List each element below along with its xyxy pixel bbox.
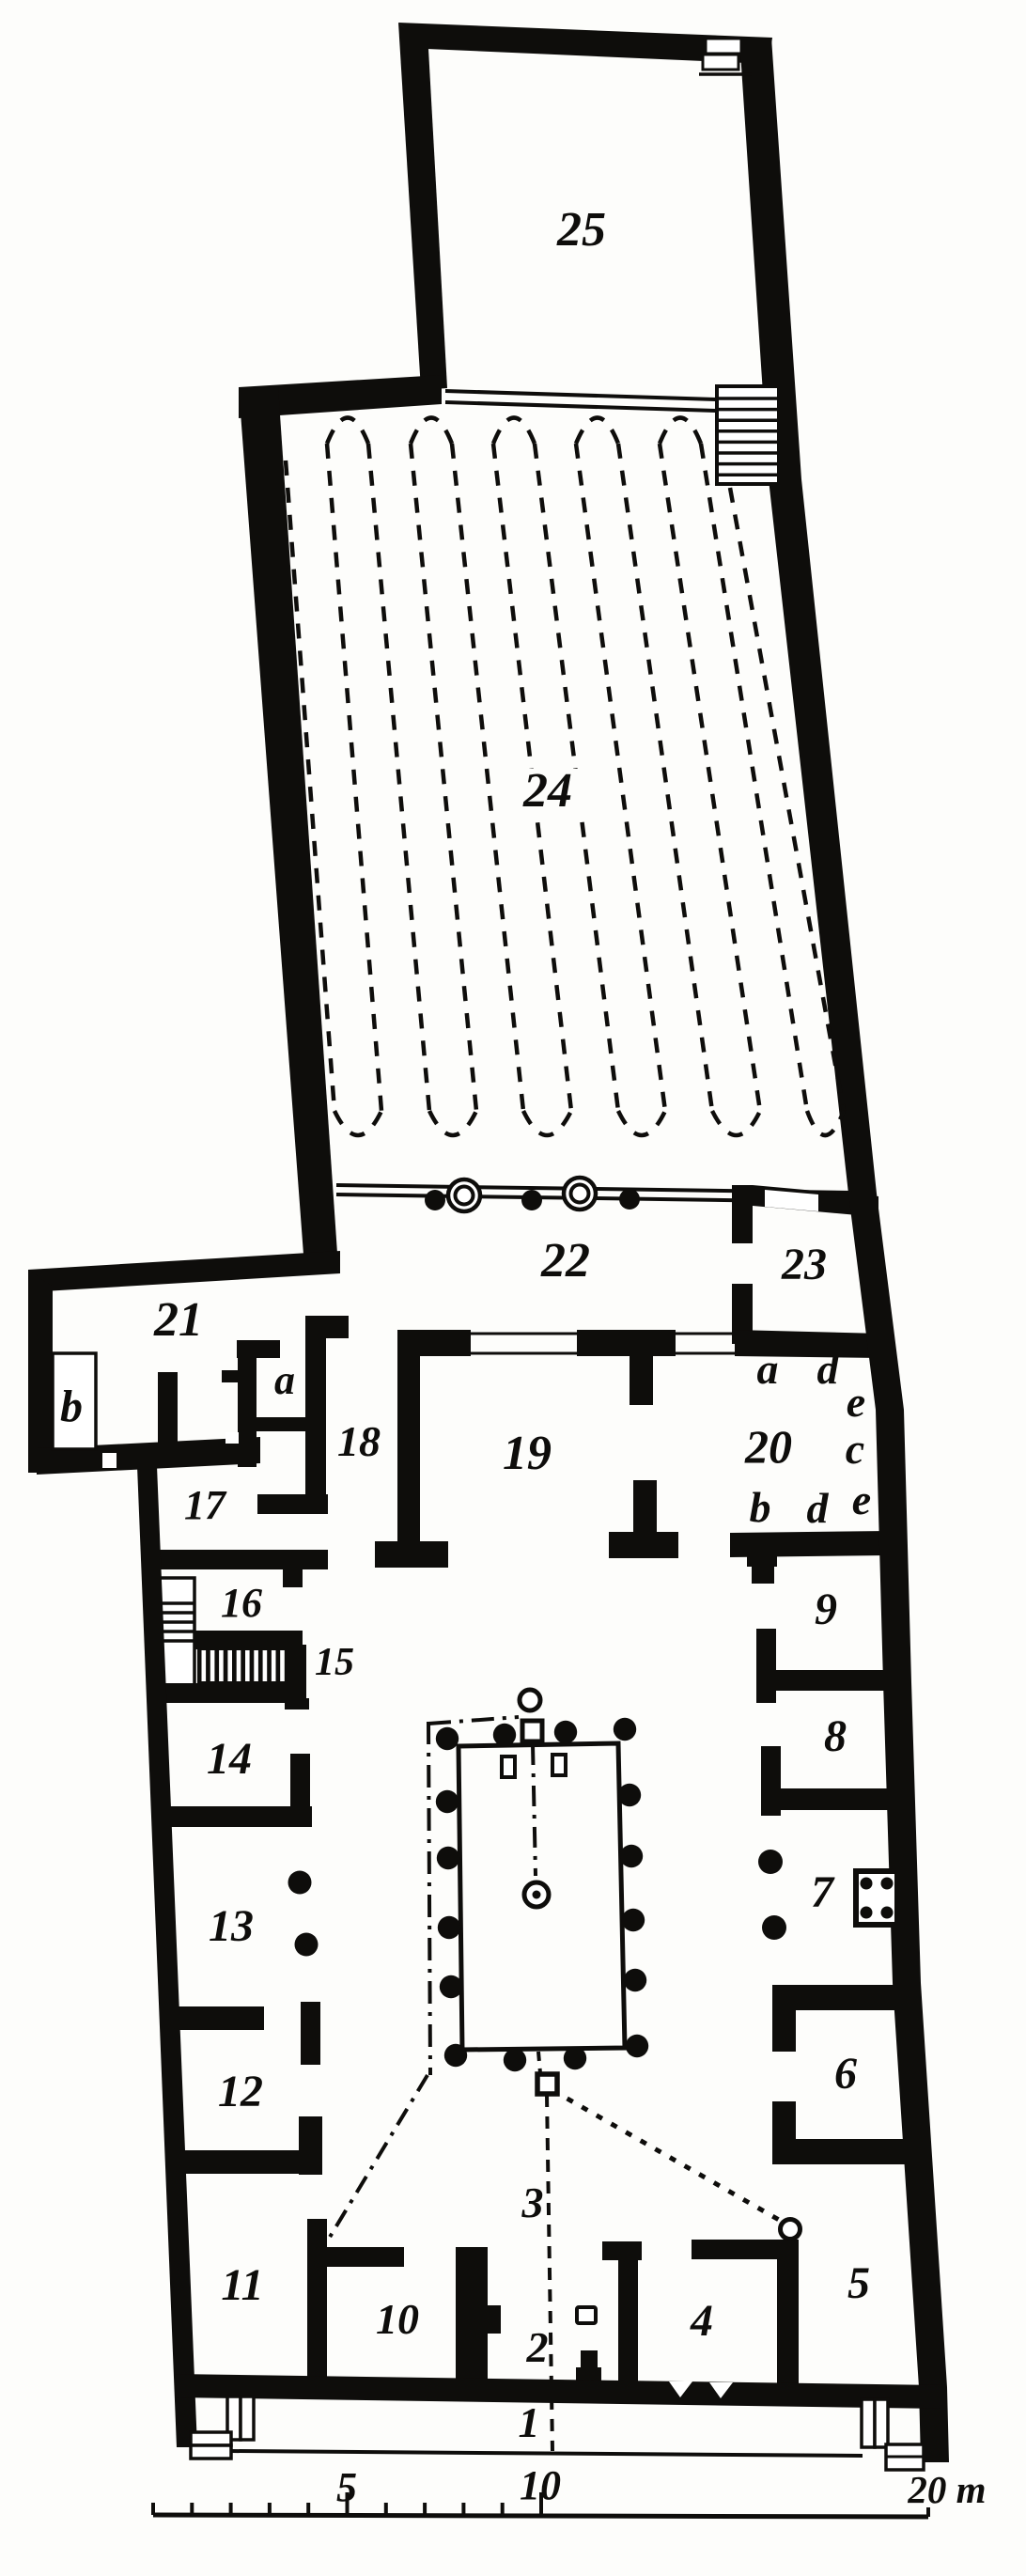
svg-text:12: 12 [218,2067,263,2116]
svg-text:d: d [817,1345,840,1393]
svg-text:e: e [847,1378,865,1426]
svg-text:14: 14 [207,1734,252,1784]
svg-text:e: e [852,1475,871,1523]
svg-text:b: b [60,1382,83,1431]
svg-text:4: 4 [690,2296,713,2346]
svg-text:9: 9 [815,1585,837,1634]
svg-text:13: 13 [209,1901,254,1951]
svg-text:5: 5 [847,2258,870,2308]
svg-text:b: b [750,1483,771,1531]
svg-text:15: 15 [315,1641,354,1684]
svg-text:19: 19 [503,1427,552,1480]
svg-text:a: a [274,1357,295,1403]
svg-text:3: 3 [521,2178,544,2226]
svg-text:2: 2 [526,2323,549,2371]
svg-text:25: 25 [556,203,606,257]
svg-text:23: 23 [781,1240,827,1289]
svg-text:1: 1 [519,2398,540,2446]
svg-text:c: c [846,1425,864,1473]
svg-text:17: 17 [184,1482,227,1528]
svg-text:10: 10 [376,2295,419,2343]
svg-text:18: 18 [337,1417,381,1465]
svg-text:22: 22 [540,1234,590,1288]
svg-text:16: 16 [221,1580,262,1626]
svg-text:24: 24 [522,764,572,818]
svg-text:7: 7 [811,1867,835,1917]
svg-text:8: 8 [824,1711,847,1761]
svg-text:a: a [757,1345,779,1393]
svg-text:5: 5 [336,2464,357,2510]
svg-text:20: 20 [744,1420,792,1473]
svg-text:11: 11 [221,2260,263,2310]
svg-text:d: d [807,1484,830,1532]
svg-text:10: 10 [520,2462,561,2508]
svg-text:20 m: 20 m [907,2468,986,2511]
svg-text:21: 21 [153,1293,203,1347]
svg-text:6: 6 [834,2049,857,2099]
